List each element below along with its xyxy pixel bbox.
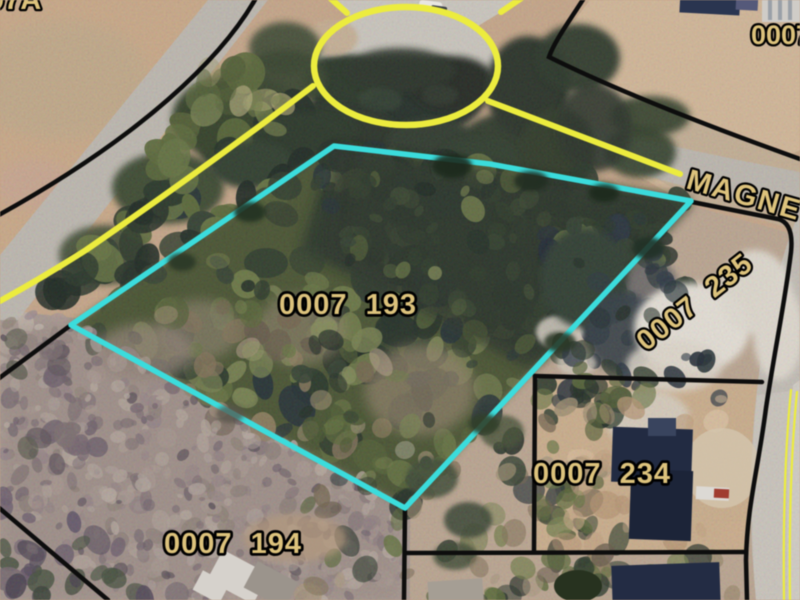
svg-text:0007 234: 0007 234 [533, 458, 671, 490]
svg-text:0007 193: 0007 193 [279, 289, 417, 321]
svg-text:07A: 07A [0, 0, 41, 16]
svg-text:0007: 0007 [751, 20, 800, 50]
svg-text:0007 194: 0007 194 [164, 528, 302, 560]
